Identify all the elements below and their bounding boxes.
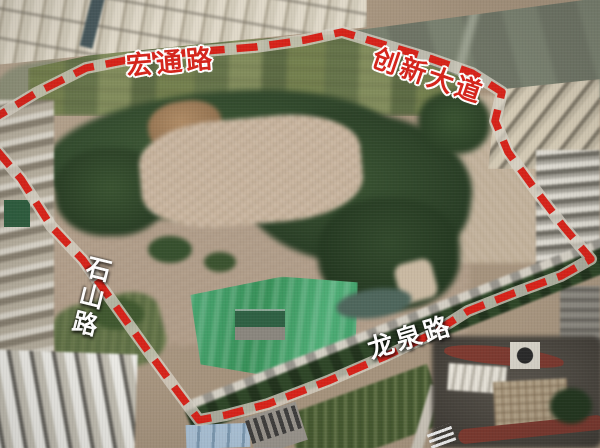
residential-blocks-southwest bbox=[0, 350, 138, 448]
shrub-patch bbox=[148, 236, 192, 263]
road-label-hongtong-road: 宏通路 bbox=[125, 38, 218, 83]
city-strip-west bbox=[0, 100, 54, 382]
blue-roof-buildings bbox=[186, 423, 251, 448]
shrub-patch bbox=[204, 252, 236, 272]
rooftop-dome bbox=[510, 342, 540, 369]
tree-cluster bbox=[550, 388, 592, 424]
aerial-photo: 宏通路 创新大道 石山路 龙泉路 bbox=[0, 0, 600, 448]
construction-building bbox=[235, 309, 285, 340]
sports-court bbox=[4, 200, 30, 227]
